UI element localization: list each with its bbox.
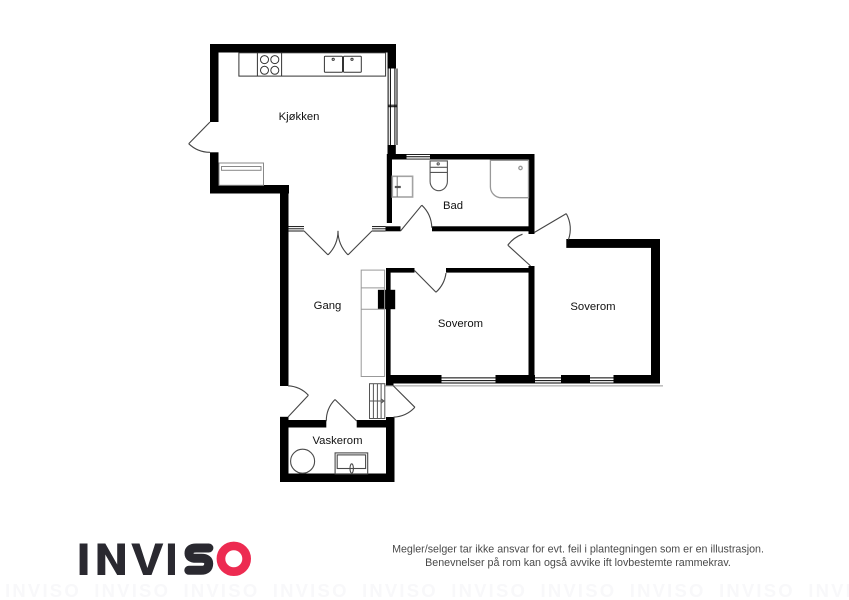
svg-text:INVISO INVISO INVISO INVISO IN: INVISO INVISO INVISO INVISO INVISO INVIS… [5,580,849,600]
svg-text:Kjøkken: Kjøkken [279,111,320,123]
svg-text:Benevnelser på rom kan også av: Benevnelser på rom kan også avvike ift l… [425,557,731,569]
svg-text:Megler/selger tar ikke ansvar: Megler/selger tar ikke ansvar for evt. f… [392,544,764,556]
svg-text:Gang: Gang [314,300,342,312]
svg-text:Bad: Bad [443,200,463,212]
svg-text:Soverom: Soverom [570,301,615,313]
svg-text:Soverom: Soverom [438,318,483,330]
svg-text:Vaskerom: Vaskerom [312,435,362,447]
